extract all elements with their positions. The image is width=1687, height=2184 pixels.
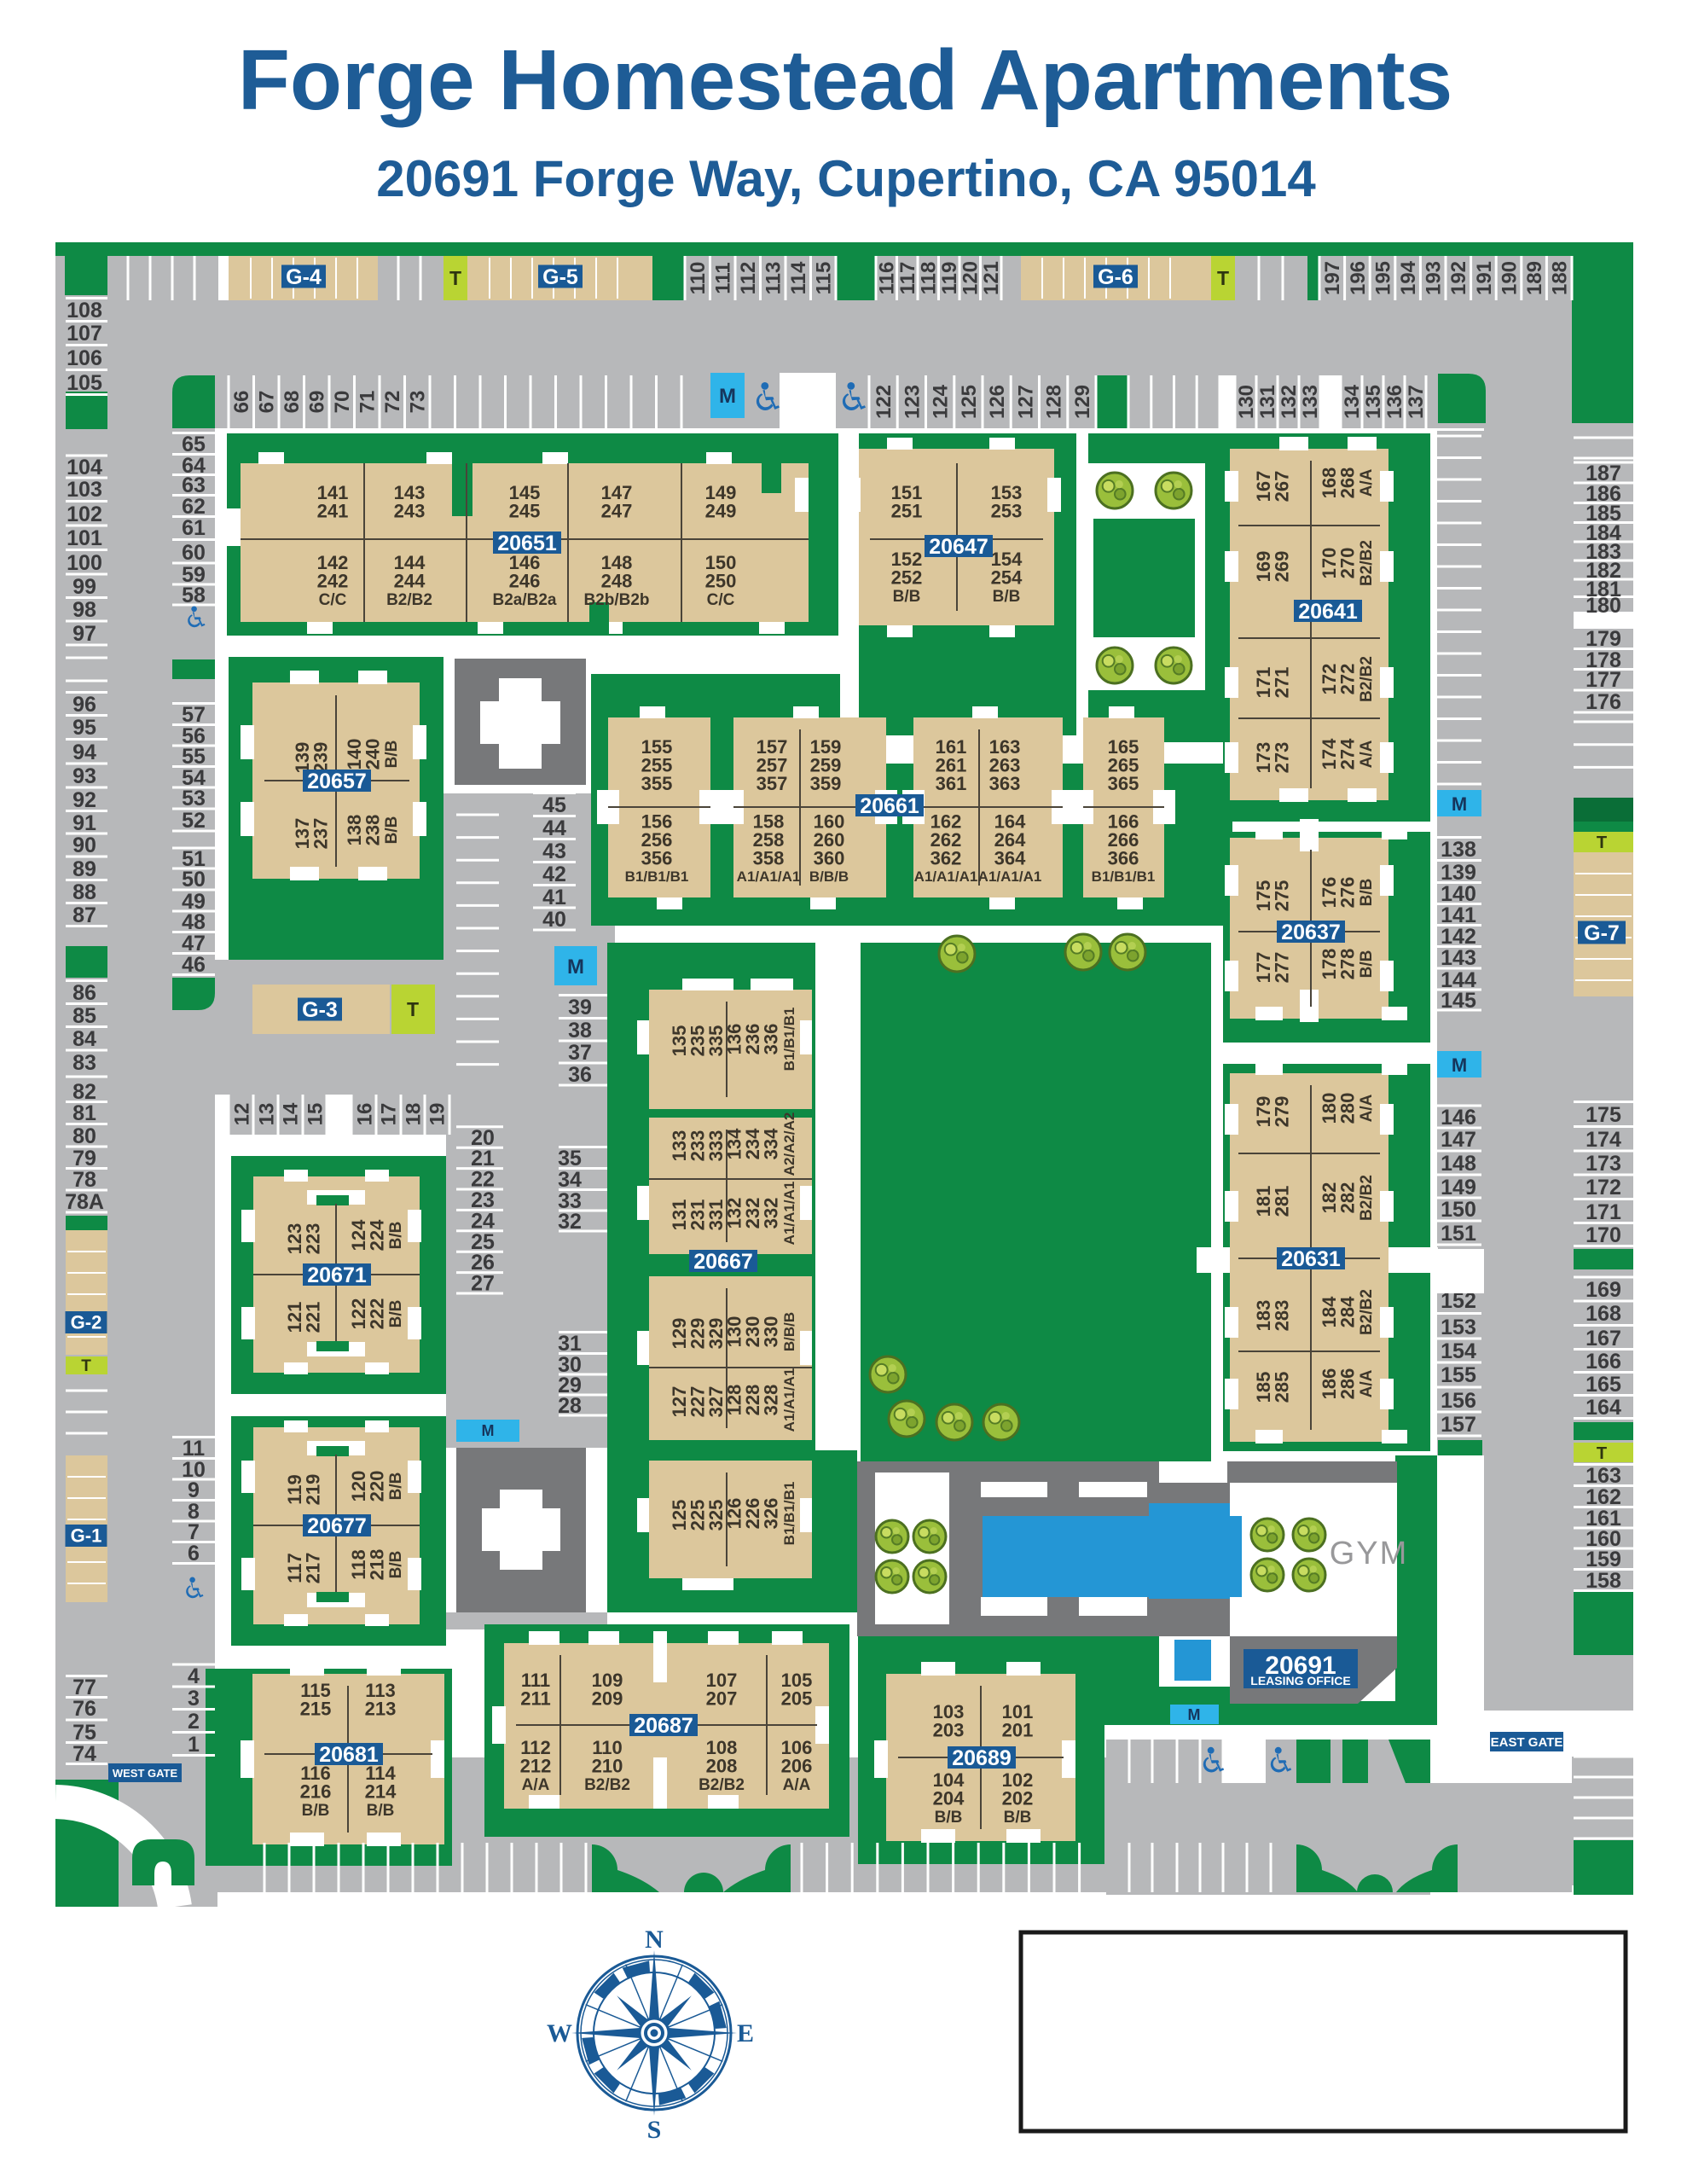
svg-text:20687: 20687 — [634, 1714, 693, 1738]
svg-text:178278B/B: 178278B/B — [1319, 949, 1376, 980]
svg-text:82: 82 — [72, 1080, 96, 1104]
svg-text:149: 149 — [1441, 1176, 1476, 1199]
svg-text:4: 4 — [188, 1664, 200, 1688]
svg-text:132: 132 — [1278, 385, 1301, 419]
svg-text:86: 86 — [72, 981, 96, 1005]
svg-text:27: 27 — [471, 1272, 495, 1296]
svg-text:177: 177 — [1586, 668, 1621, 692]
svg-text:79: 79 — [72, 1147, 96, 1170]
svg-text:167267: 167267 — [1253, 471, 1293, 502]
svg-text:111: 111 — [712, 262, 735, 293]
svg-text:107207: 107207 — [706, 1670, 738, 1710]
svg-text:76: 76 — [72, 1697, 96, 1721]
svg-text:20647: 20647 — [929, 535, 988, 559]
svg-text:Forge Homestead Apartments: Forge Homestead Apartments — [238, 32, 1452, 128]
svg-text:61: 61 — [182, 516, 206, 540]
svg-text:G-1: G-1 — [71, 1525, 102, 1547]
svg-text:145: 145 — [1441, 989, 1476, 1013]
svg-text:166: 166 — [1586, 1350, 1621, 1374]
svg-text:140: 140 — [1441, 882, 1476, 906]
svg-text:89: 89 — [72, 857, 96, 881]
svg-text:T: T — [81, 1357, 91, 1375]
svg-text:119: 119 — [938, 262, 961, 295]
svg-text:G-3: G-3 — [302, 998, 338, 1022]
svg-text:147: 147 — [1441, 1128, 1476, 1152]
svg-text:127227327: 127227327 — [669, 1386, 727, 1418]
svg-text:129: 129 — [1071, 385, 1094, 419]
svg-text:90: 90 — [72, 834, 96, 857]
svg-text:149249: 149249 — [705, 482, 737, 522]
svg-text:9: 9 — [188, 1478, 200, 1502]
svg-text:17: 17 — [377, 1103, 400, 1126]
svg-text:121221: 121221 — [284, 1302, 324, 1333]
svg-text:120220B/B: 120220B/B — [348, 1471, 405, 1502]
svg-text:116216B/B: 116216B/B — [300, 1763, 332, 1820]
svg-text:20637: 20637 — [1281, 921, 1341, 944]
svg-text:189: 189 — [1523, 261, 1546, 295]
svg-text:158: 158 — [1586, 1569, 1621, 1593]
svg-text:130230330B/B/B: 130230330B/B/B — [723, 1312, 797, 1351]
svg-text:M: M — [1452, 793, 1467, 815]
svg-text:52: 52 — [182, 809, 206, 833]
svg-text:174: 174 — [1586, 1128, 1621, 1152]
svg-text:173273: 173273 — [1253, 742, 1293, 774]
svg-text:20671: 20671 — [307, 1263, 367, 1287]
svg-text:11: 11 — [183, 1437, 206, 1461]
svg-text:3: 3 — [188, 1687, 200, 1711]
svg-text:72: 72 — [381, 391, 404, 414]
svg-text:197: 197 — [1321, 261, 1344, 295]
svg-text:176276B/B: 176276B/B — [1319, 877, 1376, 909]
svg-text:85: 85 — [72, 1004, 96, 1028]
svg-text:114214B/B: 114214B/B — [365, 1763, 397, 1820]
svg-text:150: 150 — [1441, 1198, 1476, 1222]
svg-text:105205: 105205 — [781, 1670, 813, 1710]
svg-text:107: 107 — [67, 322, 102, 346]
svg-text:73: 73 — [407, 391, 430, 414]
svg-text:20667: 20667 — [693, 1250, 753, 1274]
svg-text:150250C/C: 150250C/C — [705, 552, 737, 609]
svg-text:160260360B/B/B: 160260360B/B/B — [809, 810, 849, 885]
svg-text:138238B/B: 138238B/B — [344, 815, 401, 846]
svg-text:102: 102 — [67, 502, 102, 526]
svg-text:163263363: 163263363 — [989, 736, 1021, 794]
svg-text:47: 47 — [182, 932, 206, 955]
svg-text:115: 115 — [813, 262, 836, 295]
svg-text:94: 94 — [72, 741, 96, 764]
svg-text:134: 134 — [1341, 384, 1364, 419]
svg-text:194: 194 — [1397, 260, 1420, 295]
svg-text:146: 146 — [1441, 1106, 1476, 1130]
svg-text:37: 37 — [568, 1041, 592, 1065]
svg-text:32: 32 — [558, 1210, 582, 1234]
svg-text:55: 55 — [182, 745, 206, 769]
svg-text:65: 65 — [182, 433, 206, 456]
svg-text:191: 191 — [1473, 261, 1496, 295]
svg-text:74: 74 — [72, 1742, 96, 1766]
svg-text:91: 91 — [72, 811, 96, 835]
svg-text:130: 130 — [1235, 385, 1258, 419]
svg-text:101: 101 — [67, 526, 102, 550]
svg-text:111211: 111211 — [520, 1670, 551, 1710]
svg-text:123223: 123223 — [284, 1223, 324, 1255]
svg-text:112212A/A: 112212A/A — [520, 1737, 552, 1794]
svg-text:125225325: 125225325 — [669, 1500, 727, 1531]
svg-text:T: T — [1597, 1444, 1607, 1463]
svg-text:WEST GATE: WEST GATE — [113, 1767, 178, 1780]
svg-text:153: 153 — [1441, 1316, 1476, 1339]
svg-text:35: 35 — [558, 1147, 582, 1170]
svg-text:95: 95 — [72, 716, 96, 740]
svg-text:113: 113 — [762, 262, 786, 295]
svg-text:122: 122 — [872, 385, 896, 419]
svg-text:57: 57 — [182, 703, 206, 727]
svg-text:W: W — [547, 2019, 572, 2047]
svg-text:145245: 145245 — [509, 482, 541, 522]
svg-text:157: 157 — [1441, 1413, 1476, 1437]
svg-text:133: 133 — [1299, 385, 1322, 419]
svg-text:186286A/A: 186286A/A — [1319, 1368, 1376, 1400]
svg-text:13: 13 — [255, 1103, 278, 1126]
svg-text:161261361: 161261361 — [936, 736, 967, 794]
svg-text:183283: 183283 — [1253, 1300, 1293, 1332]
svg-text:177277: 177277 — [1253, 952, 1293, 984]
svg-text:66: 66 — [230, 391, 253, 414]
svg-text:104: 104 — [67, 456, 102, 479]
svg-text:173: 173 — [1586, 1152, 1621, 1176]
svg-text:77: 77 — [72, 1676, 96, 1699]
svg-text:193: 193 — [1423, 261, 1446, 295]
svg-text:E: E — [737, 2019, 754, 2047]
svg-text:20651: 20651 — [497, 531, 557, 555]
svg-text:M: M — [1188, 1706, 1201, 1723]
svg-text:39: 39 — [568, 996, 592, 1019]
svg-text:142242C/C: 142242C/C — [317, 552, 349, 609]
svg-text:106206A/A: 106206A/A — [781, 1737, 813, 1794]
svg-text:118218B/B: 118218B/B — [348, 1549, 405, 1581]
svg-text:34: 34 — [558, 1168, 582, 1192]
svg-text:88: 88 — [72, 880, 96, 904]
svg-text:101201: 101201 — [1002, 1701, 1034, 1741]
svg-text:T: T — [1217, 267, 1229, 289]
svg-text:168268A/A: 168268A/A — [1319, 468, 1376, 499]
svg-text:83: 83 — [72, 1051, 96, 1075]
svg-text:16: 16 — [353, 1103, 376, 1126]
svg-text:108: 108 — [67, 299, 102, 322]
svg-text:M: M — [1452, 1054, 1467, 1076]
svg-text:20691 Forge Way, Cupertino, CA: 20691 Forge Way, Cupertino, CA 95014 — [376, 150, 1316, 207]
svg-text:125: 125 — [958, 385, 981, 419]
svg-text:G-7: G-7 — [1584, 921, 1620, 945]
svg-text:20681: 20681 — [319, 1743, 379, 1767]
svg-text:126: 126 — [986, 385, 1009, 419]
svg-text:121: 121 — [980, 261, 1003, 295]
svg-text:G-5: G-5 — [542, 265, 578, 289]
svg-text:169: 169 — [1586, 1278, 1621, 1302]
svg-text:N: N — [645, 1926, 664, 1954]
svg-text:179279: 179279 — [1253, 1096, 1293, 1128]
svg-text:60: 60 — [182, 541, 206, 565]
svg-text:LEASING OFFICE: LEASING OFFICE — [1250, 1674, 1350, 1687]
svg-text:188: 188 — [1549, 261, 1572, 295]
svg-text:G-4: G-4 — [286, 265, 322, 289]
svg-text:103203: 103203 — [933, 1701, 965, 1741]
svg-text:M: M — [567, 955, 584, 979]
svg-text:48: 48 — [182, 910, 206, 934]
svg-text:127: 127 — [1014, 385, 1037, 419]
svg-text:50: 50 — [182, 868, 206, 892]
svg-text:106: 106 — [67, 346, 102, 370]
svg-text:6: 6 — [188, 1542, 200, 1565]
svg-text:179: 179 — [1586, 627, 1621, 651]
svg-text:20631: 20631 — [1281, 1247, 1341, 1271]
svg-text:143243: 143243 — [394, 482, 426, 522]
svg-text:142: 142 — [1441, 925, 1476, 949]
svg-text:63: 63 — [182, 473, 206, 497]
svg-text:T: T — [449, 267, 461, 289]
svg-text:155255355: 155255355 — [641, 736, 673, 794]
svg-text:135235335: 135235335 — [669, 1025, 727, 1057]
svg-text:137: 137 — [1405, 385, 1428, 419]
svg-text:117217: 117217 — [284, 1553, 324, 1584]
svg-text:20689: 20689 — [952, 1746, 1012, 1770]
svg-text:EAST GATE: EAST GATE — [1491, 1735, 1563, 1750]
svg-text:170: 170 — [1586, 1223, 1621, 1247]
svg-text:192: 192 — [1447, 261, 1470, 295]
svg-text:181281: 181281 — [1253, 1186, 1293, 1217]
svg-text:138: 138 — [1441, 838, 1476, 862]
svg-text:195: 195 — [1371, 261, 1394, 295]
svg-text:12: 12 — [230, 1103, 253, 1126]
svg-text:168: 168 — [1586, 1302, 1621, 1326]
svg-text:97: 97 — [72, 622, 96, 646]
svg-text:102202B/B: 102202B/B — [1002, 1769, 1034, 1827]
svg-text:155: 155 — [1441, 1363, 1476, 1387]
svg-text:53: 53 — [182, 787, 206, 810]
svg-text:175: 175 — [1586, 1103, 1621, 1127]
svg-text:31: 31 — [558, 1332, 582, 1356]
svg-text:171271: 171271 — [1253, 667, 1293, 699]
svg-text:141: 141 — [1441, 903, 1476, 927]
svg-text:114: 114 — [787, 261, 810, 294]
svg-text:67: 67 — [256, 391, 279, 414]
svg-text:119219: 119219 — [284, 1474, 324, 1506]
svg-text:175275: 175275 — [1253, 880, 1293, 912]
svg-text:136: 136 — [1383, 385, 1406, 419]
svg-text:159: 159 — [1586, 1548, 1621, 1571]
svg-text:84: 84 — [72, 1027, 96, 1051]
svg-text:165265365: 165265365 — [1108, 736, 1139, 794]
svg-text:T: T — [407, 998, 419, 1020]
svg-text:135: 135 — [1362, 385, 1385, 419]
svg-text:41: 41 — [542, 886, 566, 909]
svg-text:167: 167 — [1586, 1327, 1621, 1350]
svg-text:124224B/B: 124224B/B — [348, 1219, 405, 1251]
svg-text:122222B/B: 122222B/B — [348, 1298, 405, 1330]
svg-text:38: 38 — [568, 1019, 592, 1043]
svg-text:96: 96 — [72, 693, 96, 717]
svg-text:46: 46 — [182, 953, 206, 977]
svg-text:124: 124 — [930, 384, 953, 419]
svg-text:133233333: 133233333 — [669, 1130, 727, 1162]
svg-text:103: 103 — [67, 478, 102, 502]
svg-text:165: 165 — [1586, 1373, 1621, 1397]
svg-text:18: 18 — [402, 1103, 425, 1126]
svg-text:128: 128 — [1043, 385, 1066, 419]
svg-text:131231331: 131231331 — [669, 1199, 727, 1231]
svg-text:171: 171 — [1586, 1200, 1621, 1224]
svg-text:174274A/A: 174274A/A — [1319, 738, 1376, 770]
svg-text:99: 99 — [72, 575, 96, 599]
svg-text:147247: 147247 — [601, 482, 633, 522]
svg-text:20657: 20657 — [307, 770, 367, 793]
svg-text:139: 139 — [1441, 861, 1476, 885]
svg-text:176: 176 — [1586, 690, 1621, 714]
svg-text:80: 80 — [72, 1124, 96, 1148]
svg-text:123: 123 — [901, 385, 924, 419]
svg-text:20641: 20641 — [1298, 600, 1358, 624]
svg-text:100: 100 — [67, 551, 102, 575]
svg-text:105: 105 — [67, 371, 102, 395]
svg-text:69: 69 — [306, 391, 329, 414]
svg-text:151: 151 — [1441, 1222, 1476, 1246]
svg-text:2: 2 — [188, 1710, 200, 1734]
svg-text:172: 172 — [1586, 1176, 1621, 1199]
svg-text:G-6: G-6 — [1098, 265, 1133, 289]
svg-text:159259359: 159259359 — [810, 736, 842, 794]
svg-text:141241: 141241 — [317, 482, 349, 522]
svg-text:104204B/B: 104204B/B — [933, 1769, 965, 1827]
svg-text:78A: 78A — [65, 1190, 104, 1214]
svg-text:118: 118 — [918, 262, 941, 295]
svg-text:154: 154 — [1441, 1339, 1476, 1363]
svg-text:14: 14 — [279, 1102, 302, 1125]
svg-text:112: 112 — [737, 262, 760, 295]
svg-text:117: 117 — [896, 262, 919, 295]
svg-text:68: 68 — [281, 391, 304, 414]
svg-text:115215: 115215 — [300, 1680, 332, 1720]
svg-text:131: 131 — [1256, 385, 1279, 419]
svg-text:36: 36 — [568, 1063, 592, 1087]
svg-text:40: 40 — [542, 908, 566, 932]
svg-text:185285: 185285 — [1253, 1372, 1293, 1403]
svg-text:28: 28 — [558, 1394, 582, 1418]
svg-text:116: 116 — [876, 262, 899, 295]
svg-text:109209: 109209 — [592, 1670, 623, 1710]
svg-text:151251: 151251 — [891, 482, 923, 522]
svg-text:196: 196 — [1347, 261, 1370, 295]
svg-text:163: 163 — [1586, 1464, 1621, 1488]
svg-text:42: 42 — [542, 863, 566, 886]
svg-text:78: 78 — [72, 1168, 96, 1192]
svg-text:93: 93 — [72, 764, 96, 788]
svg-text:58: 58 — [182, 584, 206, 607]
svg-text:7: 7 — [188, 1520, 200, 1544]
svg-text:15: 15 — [304, 1103, 327, 1126]
svg-text:S: S — [647, 2116, 662, 2144]
svg-text:1: 1 — [188, 1733, 200, 1757]
svg-text:120: 120 — [959, 261, 983, 295]
svg-text:153253: 153253 — [991, 482, 1023, 522]
svg-text:87: 87 — [72, 903, 96, 927]
svg-text:180280A/A: 180280A/A — [1319, 1093, 1376, 1124]
svg-text:98: 98 — [72, 598, 96, 622]
svg-text:143: 143 — [1441, 946, 1476, 970]
svg-text:152252B/B: 152252B/B — [891, 549, 923, 606]
svg-text:162: 162 — [1586, 1485, 1621, 1509]
svg-text:45: 45 — [542, 793, 566, 817]
svg-text:44: 44 — [542, 816, 566, 840]
svg-text:129229329: 129229329 — [669, 1318, 727, 1350]
svg-text:92: 92 — [72, 788, 96, 812]
svg-text:20661: 20661 — [860, 794, 919, 818]
svg-text:140240B/B: 140240B/B — [344, 739, 401, 770]
svg-text:GYM: GYM — [1330, 1536, 1409, 1571]
svg-text:62: 62 — [182, 495, 206, 519]
svg-text:19: 19 — [426, 1103, 449, 1126]
svg-text:169269: 169269 — [1253, 551, 1293, 583]
svg-text:110: 110 — [687, 262, 710, 295]
svg-text:154254B/B: 154254B/B — [991, 549, 1023, 606]
svg-text:81: 81 — [72, 1101, 96, 1125]
svg-text:190: 190 — [1498, 261, 1521, 295]
svg-text:T: T — [1597, 834, 1607, 852]
svg-text:M: M — [482, 1422, 495, 1439]
svg-text:20677: 20677 — [307, 1514, 367, 1538]
svg-text:137237: 137237 — [292, 818, 332, 850]
svg-text:43: 43 — [542, 839, 566, 863]
svg-text:113213: 113213 — [365, 1680, 397, 1720]
svg-text:70: 70 — [331, 391, 354, 414]
svg-text:75: 75 — [72, 1721, 96, 1745]
svg-text:71: 71 — [357, 391, 380, 414]
svg-text:G-2: G-2 — [71, 1312, 102, 1333]
svg-text:164: 164 — [1586, 1396, 1621, 1420]
svg-text:148: 148 — [1441, 1152, 1476, 1176]
svg-text:157257357: 157257357 — [757, 736, 788, 794]
svg-text:M: M — [719, 385, 736, 408]
svg-text:156: 156 — [1441, 1389, 1476, 1413]
